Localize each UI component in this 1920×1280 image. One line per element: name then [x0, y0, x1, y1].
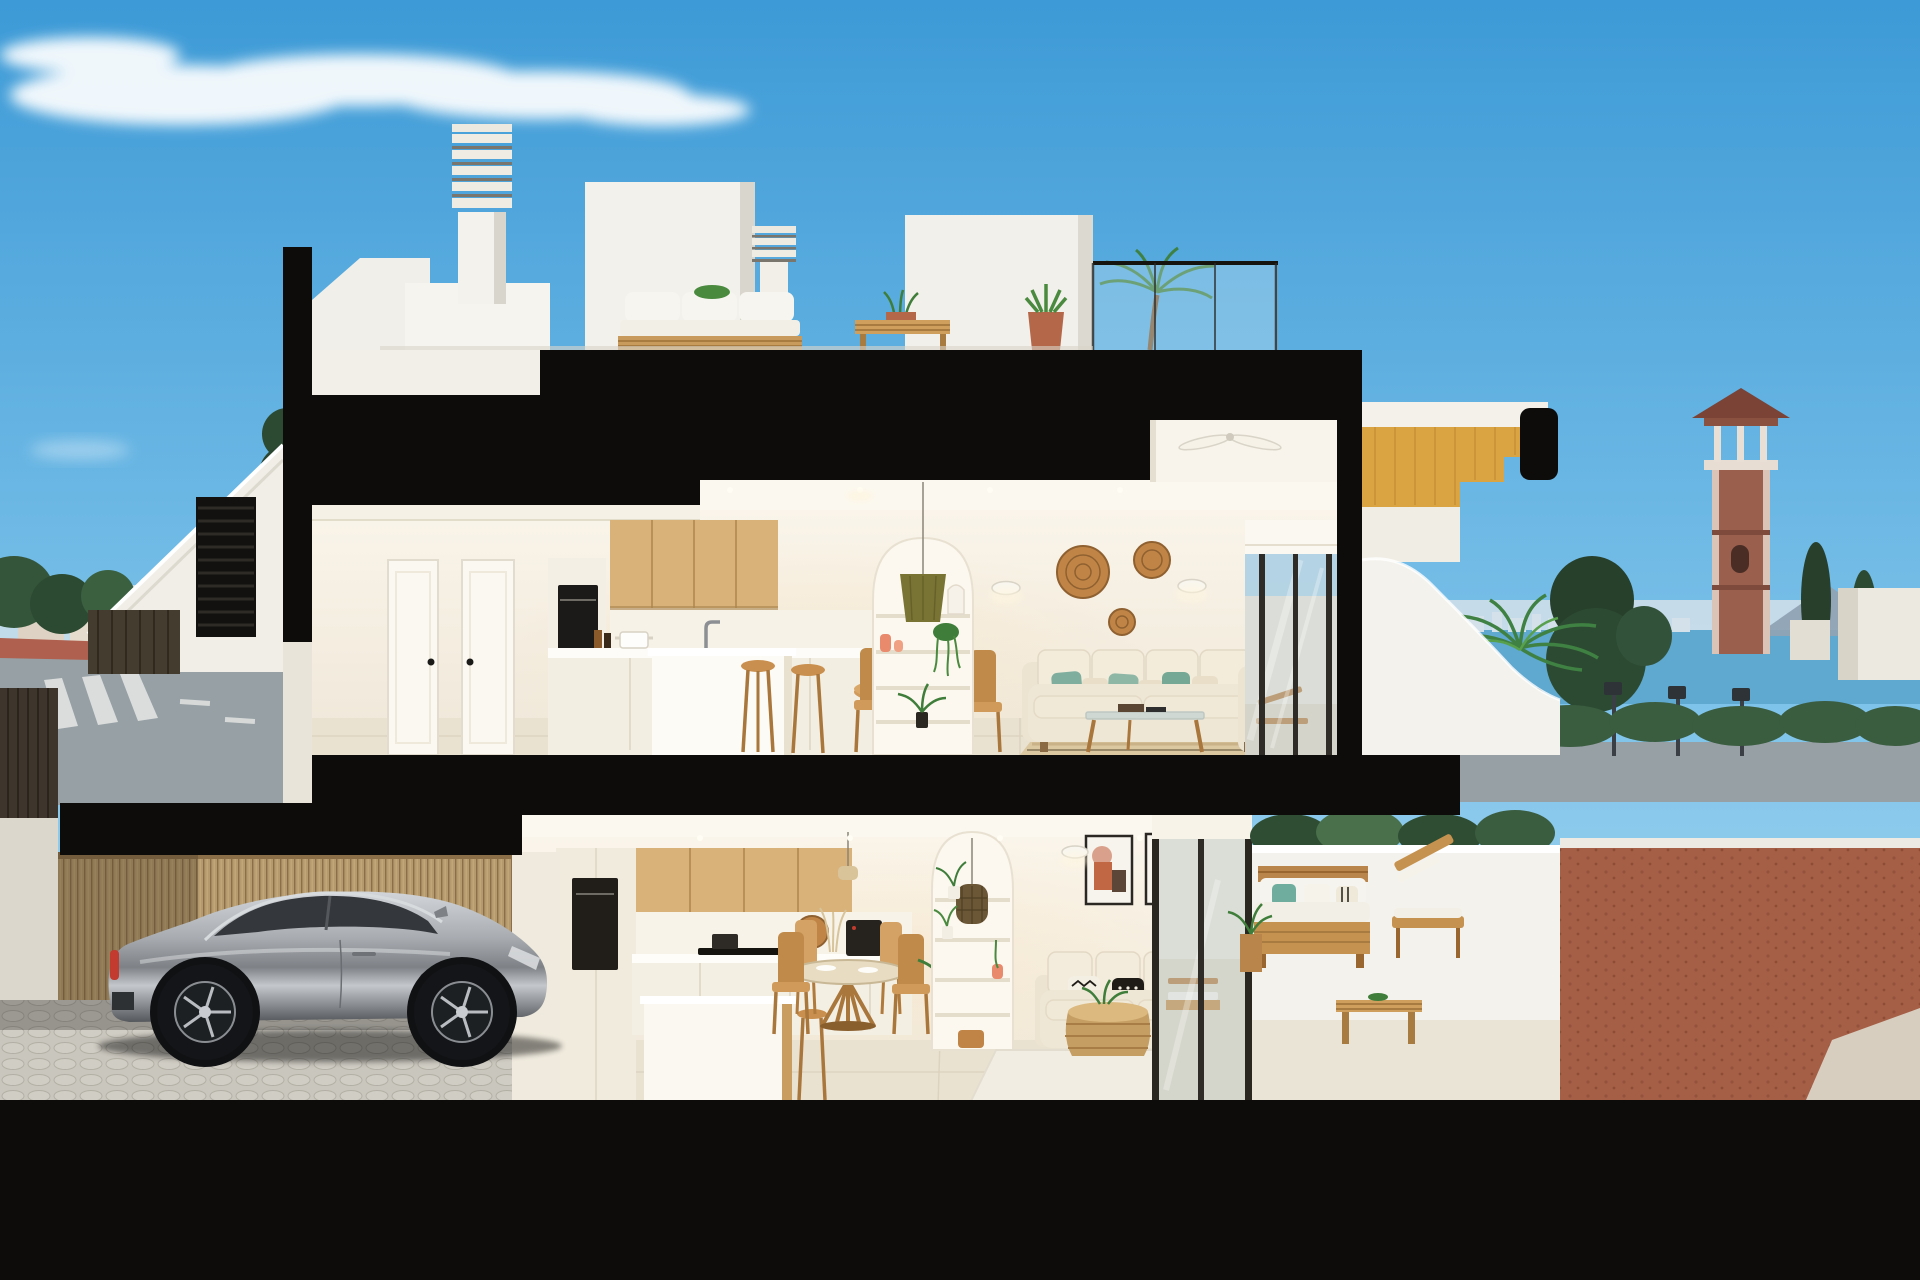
lower-sliding-glass-door [1152, 815, 1252, 1105]
potted-aloe [1026, 284, 1066, 350]
roof-volume-right-shade [1078, 215, 1093, 350]
island-top [648, 648, 796, 656]
tail-light [110, 950, 119, 980]
roller-blind-box [1245, 520, 1337, 554]
right-wall-cut [1337, 350, 1362, 757]
door-handle [428, 659, 435, 666]
louvered-gate [196, 497, 256, 637]
roof-outdoor-sofa [618, 285, 802, 350]
side-wall [283, 642, 312, 804]
wall-sconce [1060, 846, 1090, 868]
glass-balustrade [1093, 263, 1278, 350]
crosswalk [44, 672, 158, 729]
induction-hob [698, 948, 790, 955]
door-mullion [1198, 839, 1204, 1105]
white-side-wall [0, 818, 58, 1004]
left-wall-cut [283, 247, 312, 642]
island-wood-panel [782, 1004, 792, 1105]
door-handle [467, 659, 474, 666]
low-white-wall-cap [1560, 838, 1920, 848]
front-wheel [414, 964, 510, 1060]
door-mullion [1293, 554, 1298, 755]
basket [958, 1030, 984, 1048]
sofa-plant [694, 285, 730, 299]
arch-deco [948, 585, 964, 614]
raised-ceiling [1150, 420, 1337, 482]
roller-blind-box [1152, 815, 1252, 839]
upper-sliding-glass-door [1245, 520, 1337, 755]
render-canvas [0, 0, 1920, 1280]
door-frame [1152, 839, 1159, 1105]
cream-sofa [1022, 650, 1272, 752]
sauce-pan [712, 934, 738, 949]
slat-niche-wall [88, 610, 180, 674]
cross-section-illustration [0, 0, 1920, 1280]
mini-pendant [838, 866, 858, 880]
wall-sconce [990, 582, 1022, 606]
coffee-machine [846, 920, 882, 956]
arched-shelf-niche-lower [932, 832, 1013, 1050]
door-mullion [1259, 554, 1265, 755]
patio-floor [1252, 1020, 1560, 1103]
roof-parapet [312, 350, 540, 396]
kitchen-bulkhead [312, 505, 700, 520]
ground-cut [0, 1100, 1920, 1280]
lower-floor [522, 815, 1270, 1105]
round-table [791, 960, 905, 984]
lower-patio [1228, 808, 1560, 1103]
backsplash [610, 610, 900, 648]
books [1146, 707, 1166, 712]
books [1118, 704, 1144, 712]
rear-diffuser [112, 992, 134, 1010]
wall-sconce [1176, 580, 1208, 604]
framed-abstract-art [1086, 836, 1132, 904]
door-mullion [1326, 554, 1332, 755]
built-in-oven [572, 878, 618, 970]
cook-pot [615, 632, 653, 648]
small-cloud [30, 440, 130, 460]
stair-support-wall [1362, 507, 1460, 562]
tower-window [1731, 545, 1749, 573]
door-handle [352, 952, 376, 956]
stair-stringer-cut [1520, 408, 1558, 480]
louvered-chimney-tall [452, 124, 512, 304]
island-counter [644, 1004, 790, 1105]
stair-parapet [1358, 402, 1548, 427]
table-plant [1368, 993, 1388, 1001]
deck-shadow [380, 346, 1093, 350]
rear-wheel [157, 964, 253, 1060]
